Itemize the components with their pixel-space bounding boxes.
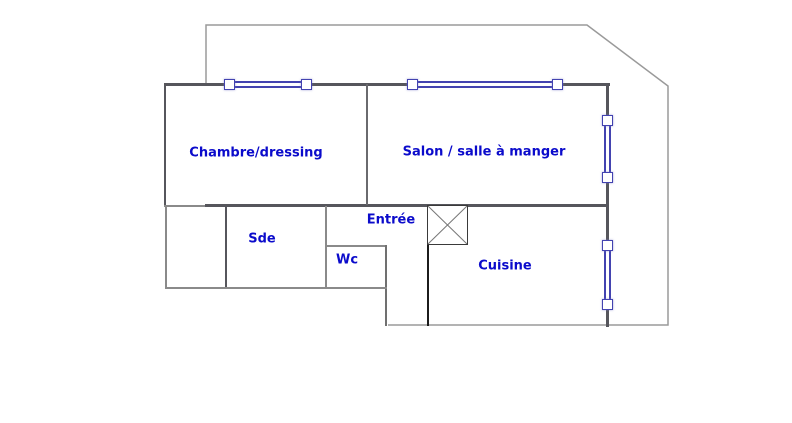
wall-wc-top — [326, 245, 386, 247]
wall-bottom-sde-wc — [165, 287, 387, 289]
room-label-chambre: Chambre/dressing — [189, 146, 322, 161]
wall-wc-right — [385, 245, 387, 326]
right-wall-window-upper-handle-top — [602, 115, 613, 126]
divider-sde-left — [225, 206, 227, 288]
wall-left-upper — [164, 83, 166, 207]
room-label-salon: Salon / salle à manger — [403, 145, 566, 160]
salon-top-window — [407, 81, 563, 88]
wall-mid-horizontal — [205, 204, 609, 207]
right-wall-window-lower-handle-top — [602, 240, 613, 251]
right-wall-window-upper-handle-bottom — [602, 172, 613, 183]
room-label-cuisine: Cuisine — [478, 259, 532, 274]
salon-top-window-handle-left — [407, 79, 418, 90]
chambre-top-window-handle-right — [301, 79, 312, 90]
chambre-top-window-handle-left — [224, 79, 235, 90]
wall-mid-left-segment — [164, 205, 206, 207]
right-wall-window-lower-handle-bottom — [602, 299, 613, 310]
room-label-sde: Sde — [248, 232, 276, 247]
outer-boundary-outline — [0, 0, 792, 423]
chambre-top-window — [224, 81, 312, 88]
crossed-square-symbol — [427, 205, 468, 245]
floor-plan: Chambre/dressing Salon / salle à manger … — [0, 0, 792, 423]
room-label-entree: Entrée — [367, 213, 415, 228]
room-label-wc: Wc — [336, 253, 358, 268]
salon-top-window-handle-right — [552, 79, 563, 90]
divider-chambre-salon — [366, 84, 368, 205]
wall-left-lower — [165, 206, 167, 288]
